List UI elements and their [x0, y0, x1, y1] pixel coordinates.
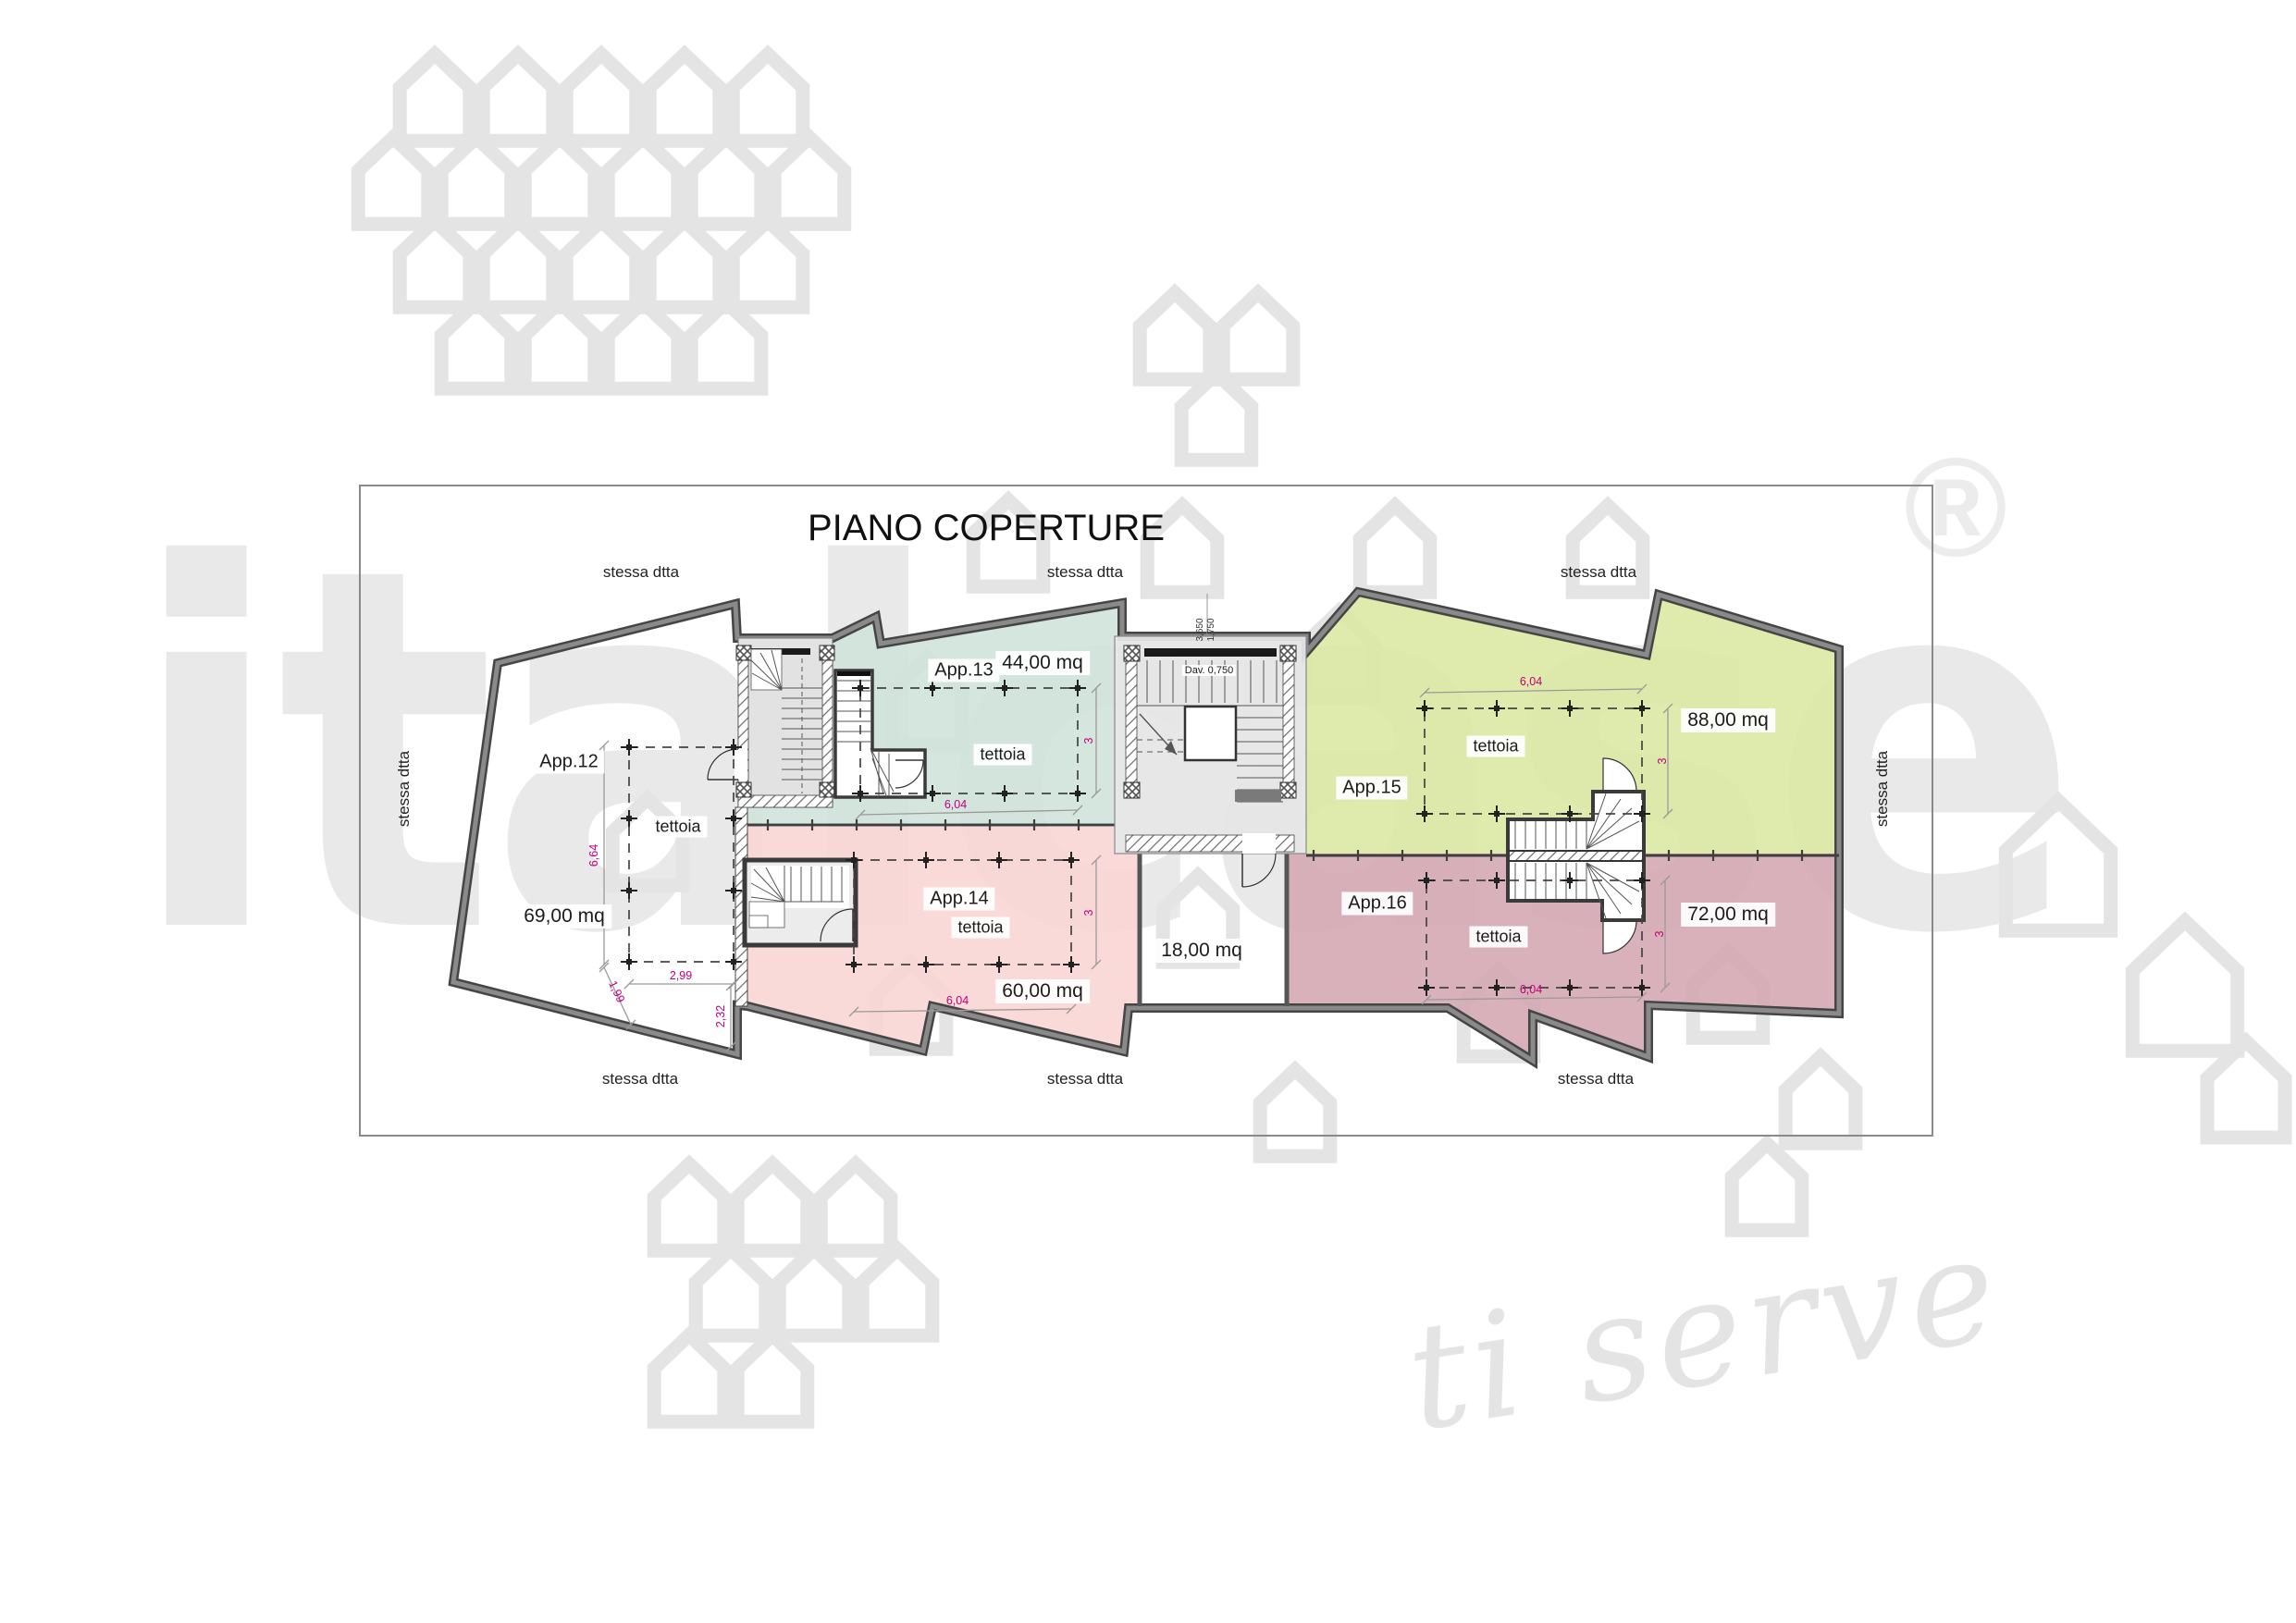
label-app12: App.12 [533, 751, 604, 774]
label-app15: App.15 [1336, 777, 1407, 800]
sill-note: Dav. 0,750 [1182, 665, 1236, 676]
note-stessa-left-side: stessa dtta [395, 751, 414, 827]
page: italcase ® ti serve [0, 0, 2296, 1623]
note-stessa-bottom-center: stessa dtta [1047, 1070, 1123, 1088]
label-app16: App.16 [1341, 892, 1413, 916]
tettoia-app16: tettoia [1469, 927, 1527, 948]
area-app16: 72,00 mq [1681, 903, 1775, 927]
tettoia-app15: tettoia [1466, 736, 1524, 757]
tettoia-app12: tettoia [648, 817, 707, 838]
area-app15: 88,00 mq [1681, 708, 1775, 732]
note-stessa-top-right: stessa dtta [1561, 563, 1636, 582]
note-stessa-bottom-left: stessa dtta [602, 1070, 678, 1088]
area-terrace: 18,00 mq [1154, 939, 1249, 963]
tettoia-app14: tettoia [951, 917, 1009, 939]
label-app14: App.14 [923, 888, 994, 911]
note-stessa-top-left: stessa dtta [603, 563, 679, 582]
area-app12: 69,00 mq [517, 904, 611, 928]
area-app13: 44,00 mq [995, 651, 1090, 675]
note-stessa-bottom-right: stessa dtta [1558, 1070, 1634, 1088]
labels-layer: PIANO COPERTURE stessa dtta stessa dtta … [0, 0, 2296, 1623]
page-title: PIANO COPERTURE [808, 508, 1165, 549]
tettoia-app13: tettoia [973, 744, 1031, 766]
note-stessa-top-center: stessa dtta [1047, 563, 1123, 582]
note-stessa-right-side: stessa dtta [1873, 751, 1892, 827]
label-app13: App.13 [928, 659, 999, 682]
area-app14: 60,00 mq [995, 979, 1090, 1003]
